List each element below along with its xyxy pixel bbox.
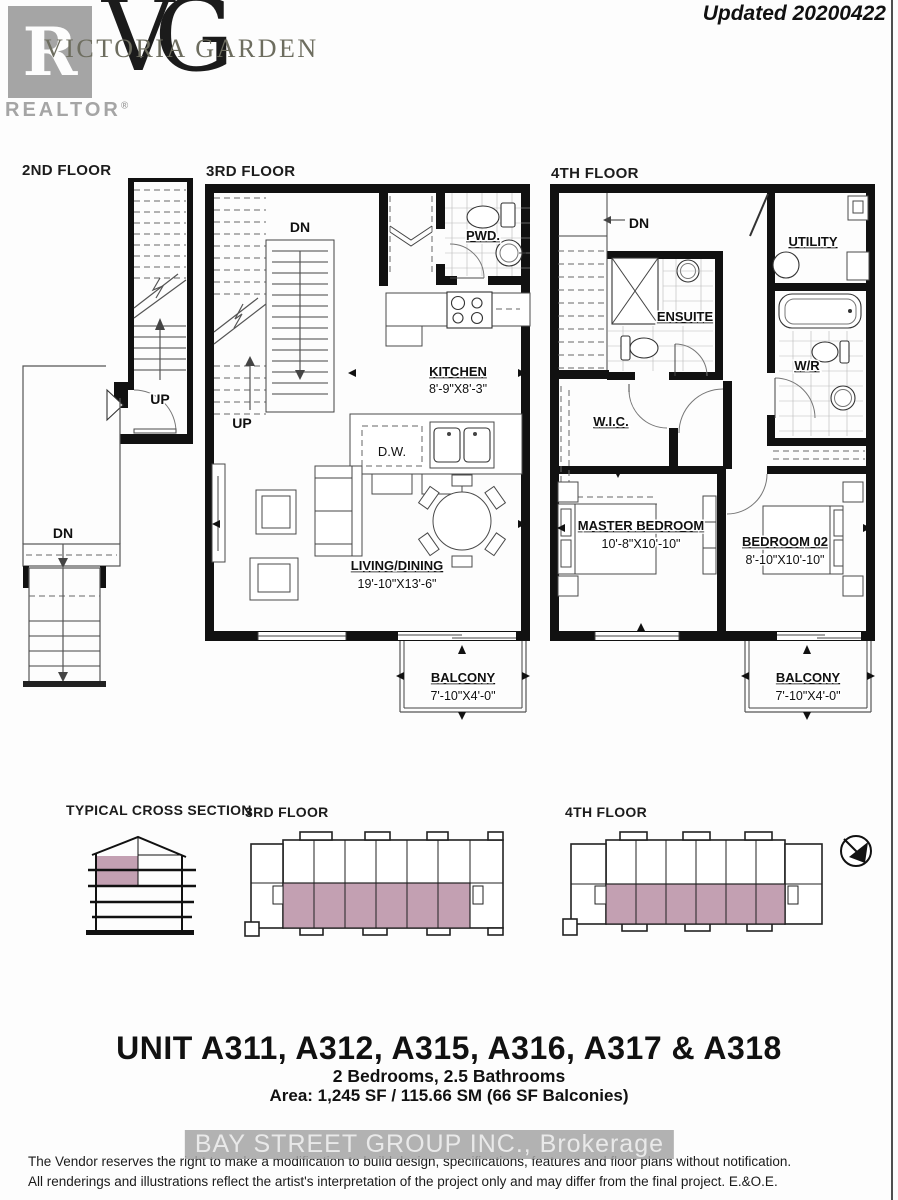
brokerage-watermark: BAY STREET GROUP INC., Brokerage	[185, 1130, 674, 1159]
third-floor-keyplan	[245, 824, 535, 944]
washroom	[773, 294, 865, 459]
balcony-label: BALCONY	[431, 670, 496, 685]
realtor-wordmark: REALTOR®	[5, 99, 131, 122]
dishwasher-label: D.W.	[378, 444, 406, 459]
cross-section-diagram	[78, 828, 208, 946]
utility-label: UTILITY	[788, 234, 837, 249]
unit-subtitle: 2 Bedrooms, 2.5 Bathrooms	[0, 1066, 898, 1087]
second-up-label: UP	[150, 391, 169, 407]
ensuite-label: ENSUITE	[657, 309, 714, 324]
bathtub-icon	[779, 294, 861, 328]
disclaimer-line-2: All renderings and illustrations reflect…	[28, 1172, 880, 1192]
floor-plan-sheet: R REALTOR® VG VICTORIA GARDEN Updated 20…	[0, 0, 898, 1200]
kitchen-label: KITCHEN	[429, 364, 487, 379]
dim-arrow-left	[348, 369, 356, 377]
closet-bifold	[390, 196, 432, 274]
living-dims: 19'-10"X13'-6"	[358, 577, 437, 591]
keyplan-third-title: 3RD FLOOR	[245, 804, 329, 820]
balcony-dims: 7'-10"X4'-0"	[430, 689, 495, 703]
toilet-icon	[467, 203, 515, 228]
north-arrow-icon	[836, 830, 876, 870]
wr-label: W/R	[794, 358, 820, 373]
kitchen-counter	[386, 292, 530, 346]
bedroom2-door	[727, 474, 767, 514]
third-floor-plan: DN UP PWD.	[200, 176, 535, 721]
master-bedroom-dims: 10'-8"X10'-10"	[602, 537, 681, 551]
sink-icon	[831, 386, 855, 410]
hall-outline	[23, 366, 120, 544]
wic-label: W.I.C.	[593, 414, 628, 429]
hallway-door	[679, 389, 723, 433]
second-dn-label: DN	[53, 525, 73, 541]
balcony-dims: 7'-10"X4'-0"	[775, 689, 840, 703]
brand-name: VICTORIA GARDEN	[44, 34, 319, 64]
kitchen-dims: 8'-9"X8'-3"	[429, 382, 487, 396]
third-dn-label: DN	[290, 219, 310, 235]
coffee-table	[256, 490, 296, 534]
unit-title: UNIT A311, A312, A315, A316, A317 & A318	[0, 1030, 898, 1067]
staircase	[214, 198, 334, 414]
tv-unit	[212, 464, 225, 562]
fourth-dn-label: DN	[629, 215, 649, 231]
armchair	[250, 558, 298, 600]
master-bedroom-label: MASTER BEDROOM	[578, 518, 704, 533]
unit-area: Area: 1,245 SF / 115.66 SM (66 SF Balcon…	[0, 1086, 898, 1106]
fourth-floor-keyplan	[555, 824, 835, 944]
toilet-icon	[621, 336, 658, 360]
page-edge-line	[891, 0, 893, 1200]
dresser	[703, 496, 716, 574]
fourth-floor-plan: DN ENSUITE W.I.C.	[545, 176, 880, 721]
cross-section-title: TYPICAL CROSS SECTION	[66, 802, 252, 818]
second-floor-plan: UP DN	[10, 176, 200, 721]
third-up-label: UP	[232, 415, 251, 431]
updated-date: Updated 20200422	[703, 2, 886, 26]
bedroom2-label: BEDROOM 02	[742, 534, 828, 549]
balcony-label: BALCONY	[776, 670, 841, 685]
shower-icon	[612, 258, 658, 324]
kitchen-island	[350, 414, 522, 494]
keyplan-fourth-title: 4TH FLOOR	[565, 804, 647, 820]
pwd-label: PWD.	[466, 228, 500, 243]
bedroom2-dims: 8'-10"X10'-10"	[746, 553, 825, 567]
down-staircase	[23, 544, 120, 687]
sofa	[315, 466, 362, 556]
dim-arrow	[637, 623, 645, 631]
living-label: LIVING/DINING	[351, 558, 443, 573]
registered-mark: ®	[121, 100, 131, 111]
double-sink-icon	[430, 422, 494, 468]
